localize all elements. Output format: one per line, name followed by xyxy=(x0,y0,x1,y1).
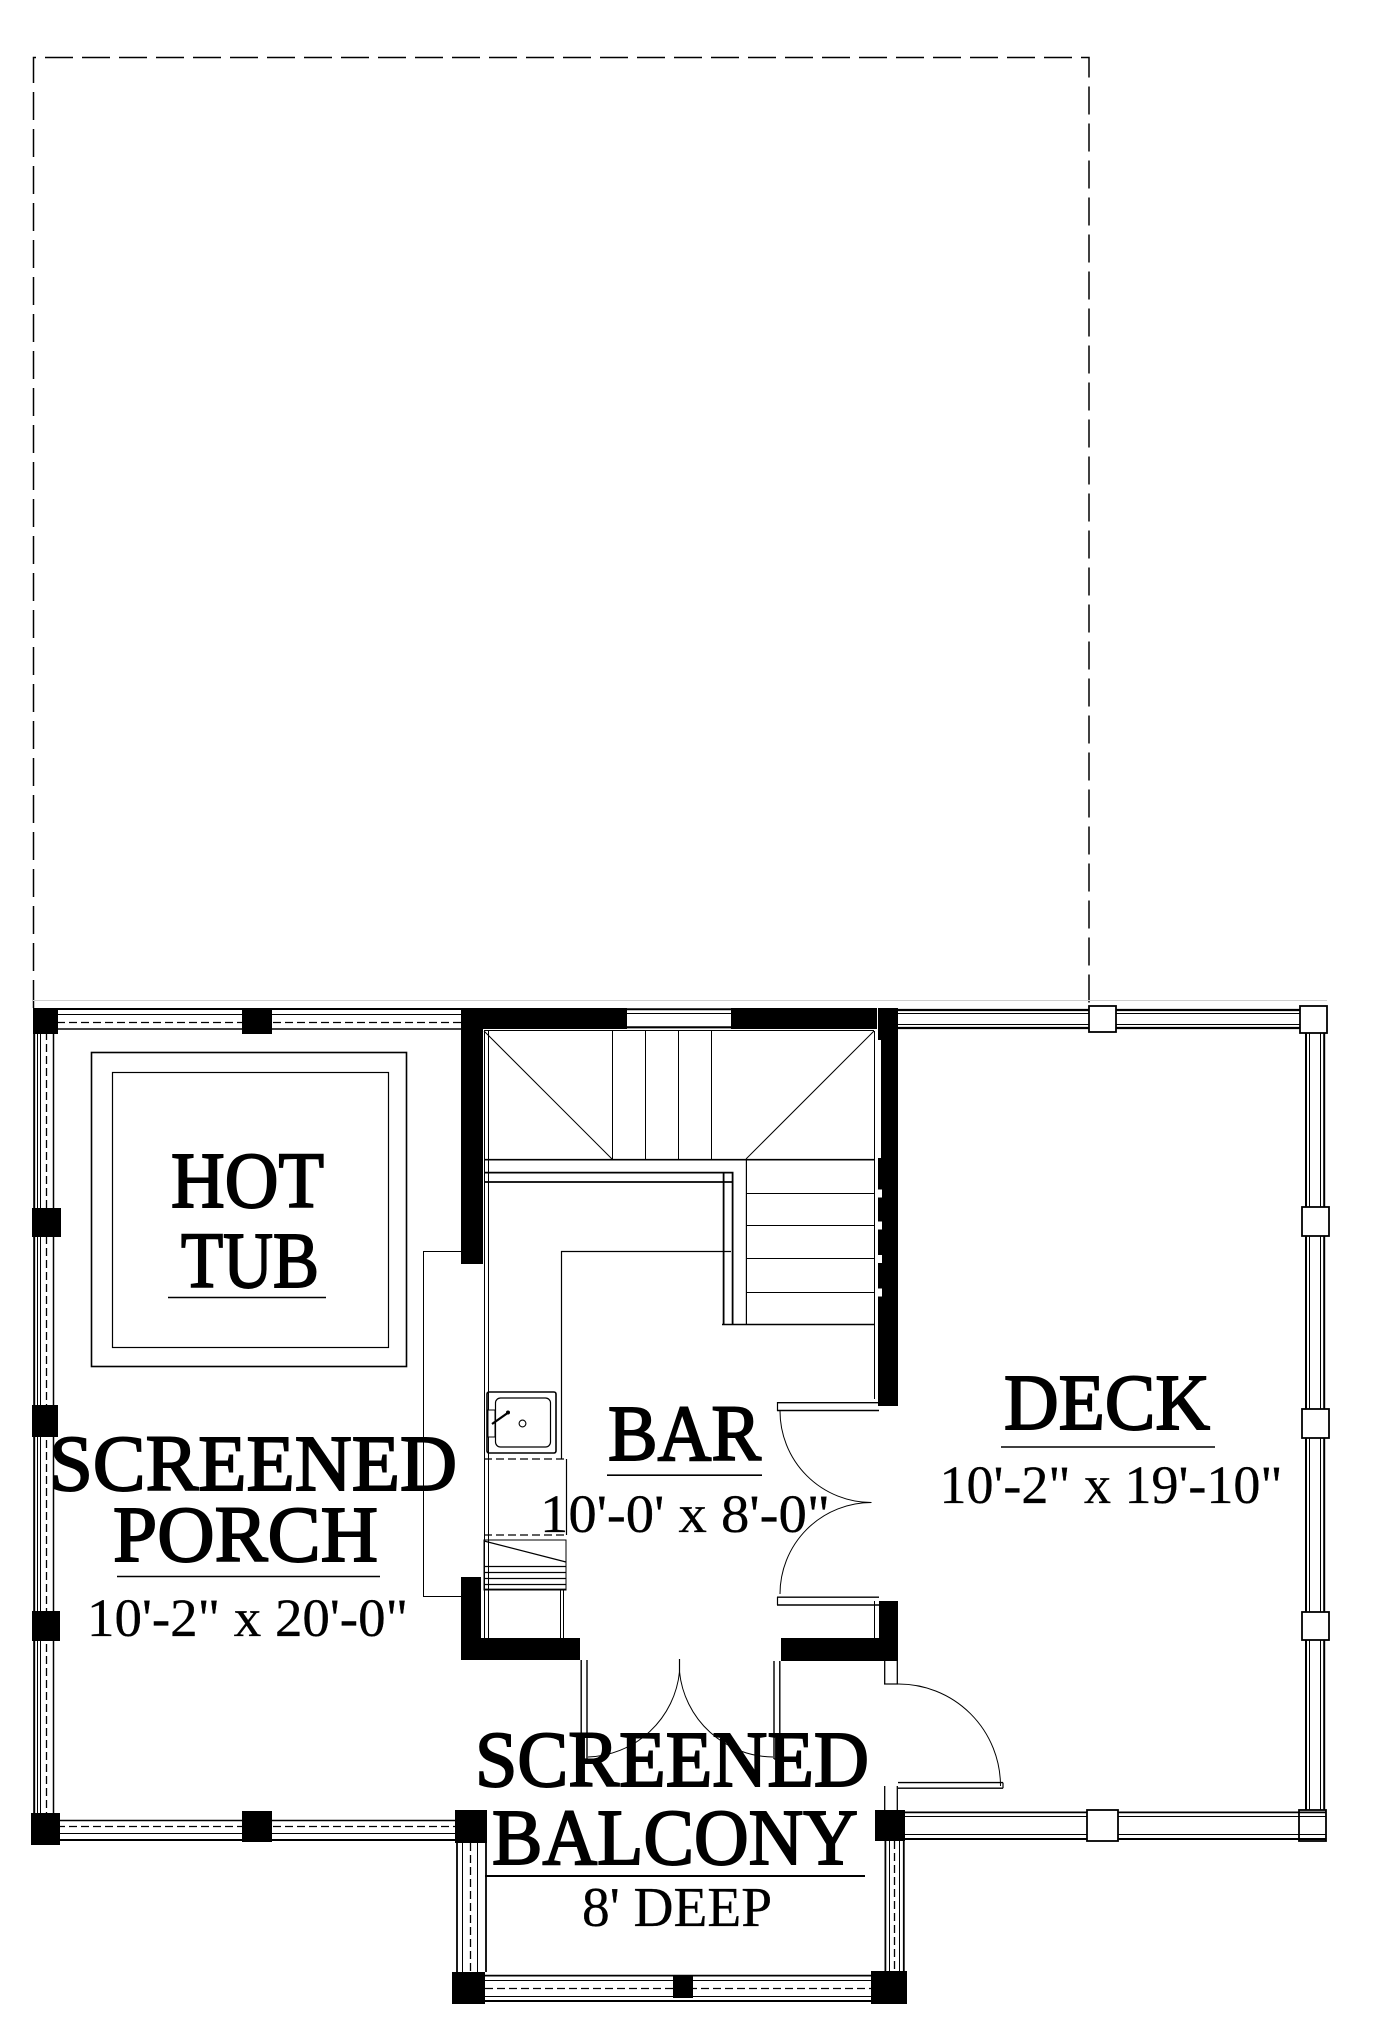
svg-text:10'-2" x 19'-10": 10'-2" x 19'-10" xyxy=(940,1455,1283,1515)
svg-text:8' DEEP: 8' DEEP xyxy=(582,1877,772,1939)
svg-text:BAR: BAR xyxy=(608,1391,761,1478)
svg-text:DECK: DECK xyxy=(1004,1360,1210,1447)
svg-text:SCREENED: SCREENED xyxy=(475,1717,869,1804)
svg-text:BALCONY: BALCONY xyxy=(492,1795,858,1882)
svg-text:10'-0' x 8'-0": 10'-0' x 8'-0" xyxy=(540,1484,830,1544)
svg-text:10'-2" x 20'-0": 10'-2" x 20'-0" xyxy=(87,1588,408,1648)
svg-text:TUB: TUB xyxy=(181,1218,319,1305)
svg-text:PORCH: PORCH xyxy=(113,1492,378,1579)
svg-text:HOT: HOT xyxy=(171,1138,324,1225)
